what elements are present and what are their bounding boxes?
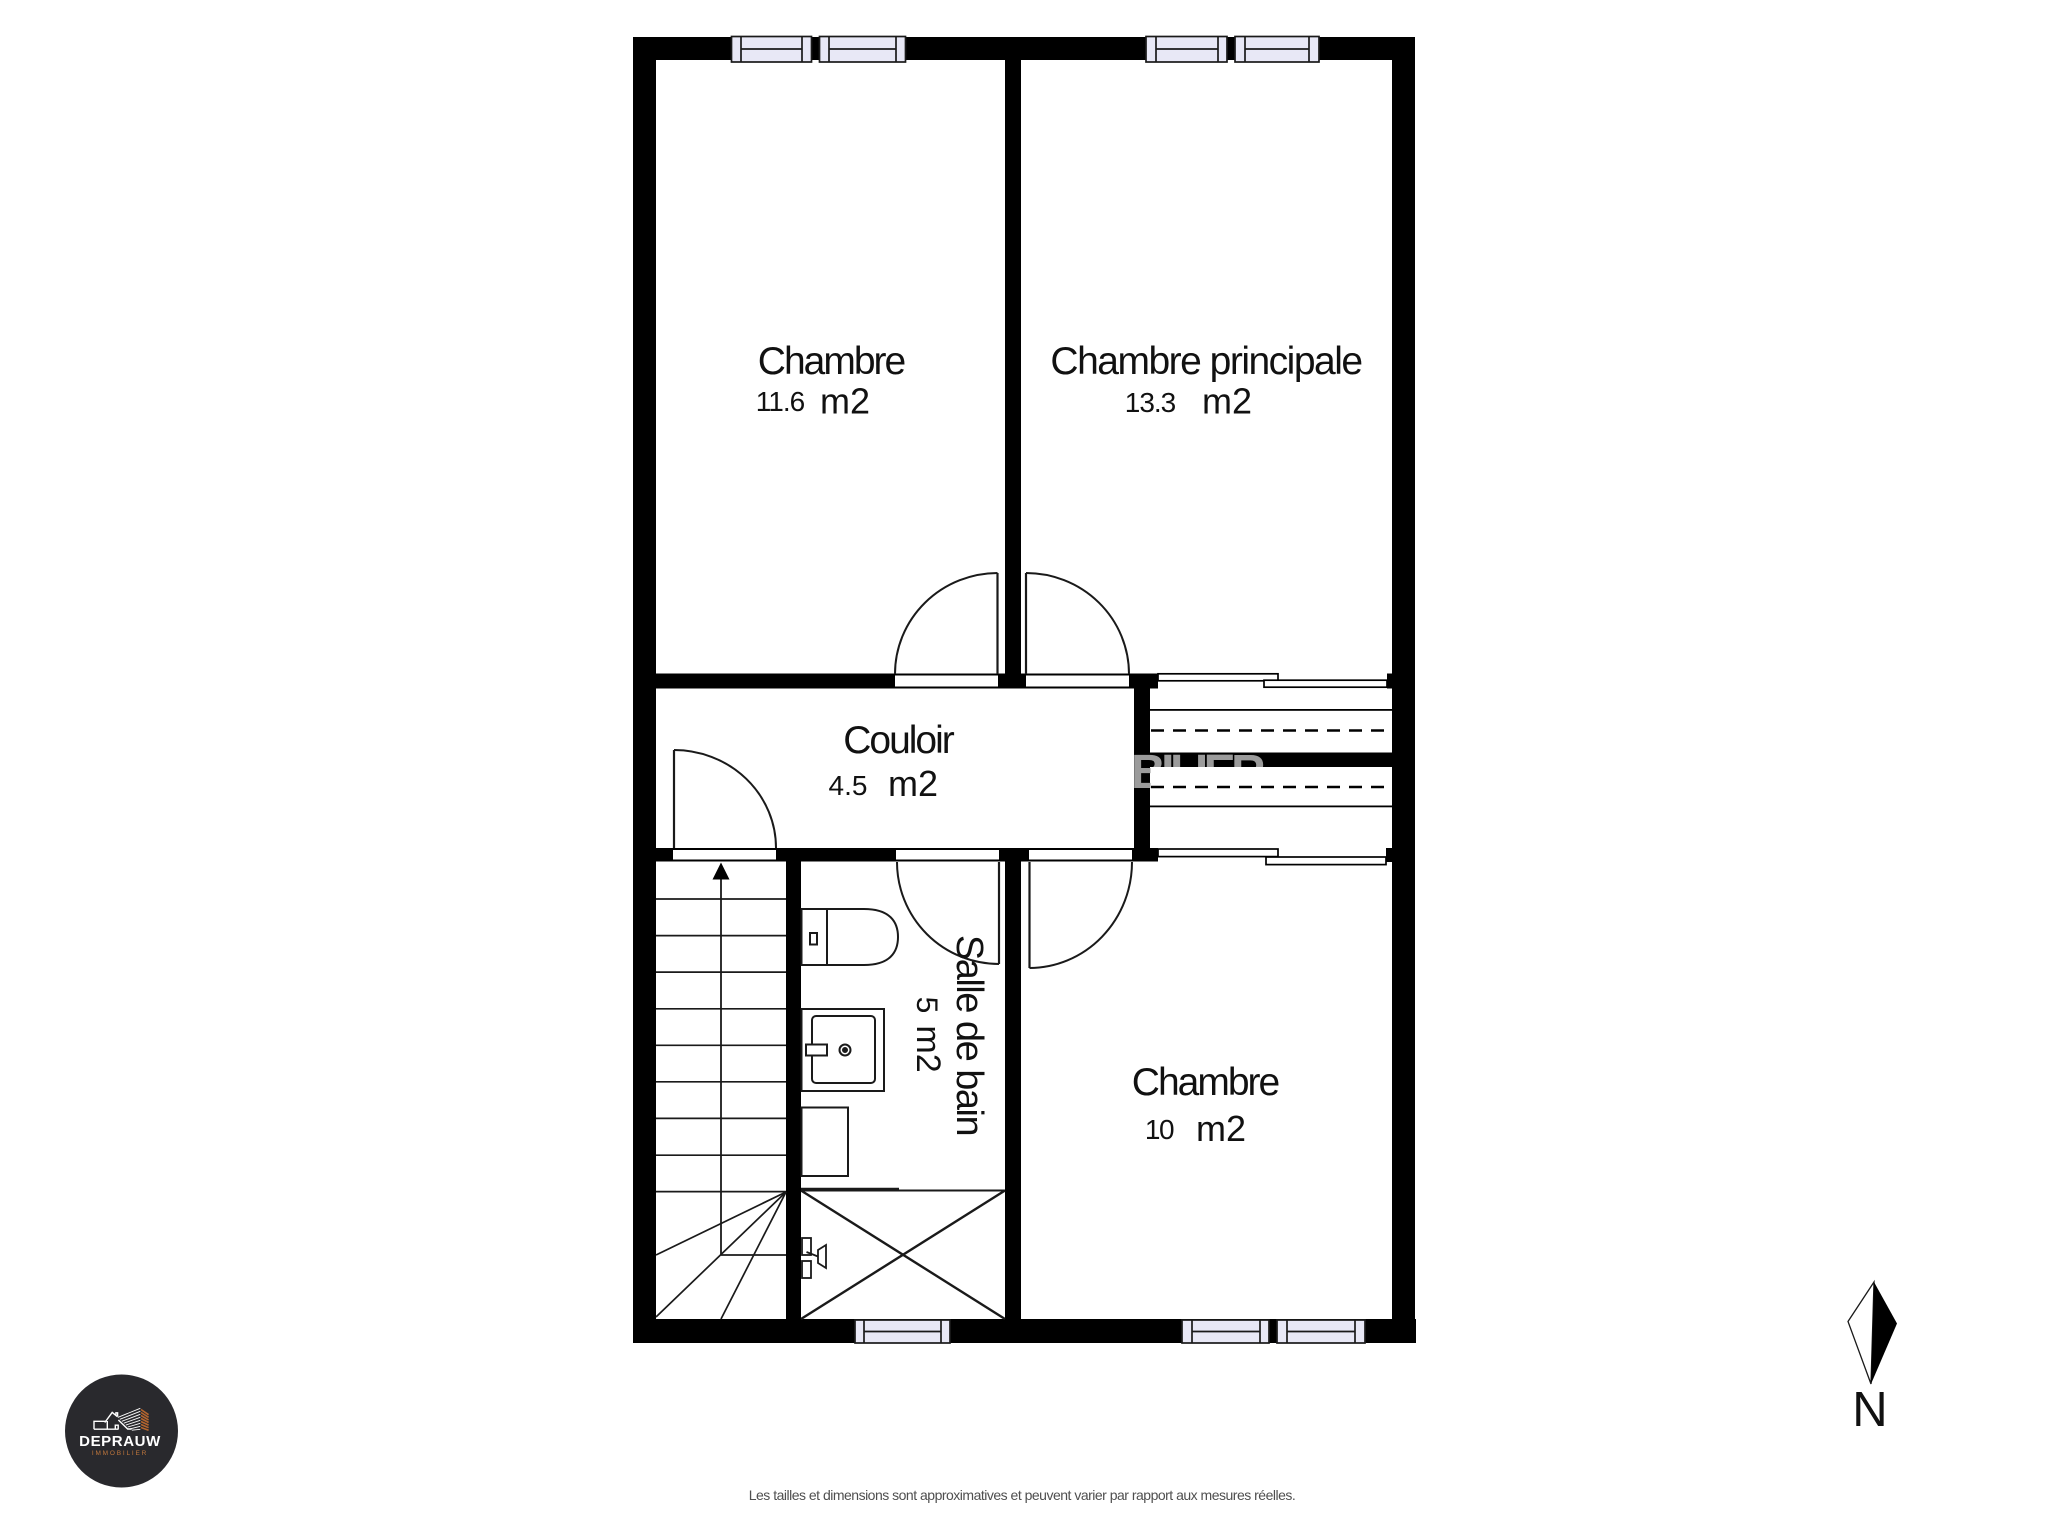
svg-text:Chambre principale: Chambre principale (1050, 340, 1361, 383)
svg-text:DEPRAUW: DEPRAUW (79, 1433, 161, 1450)
svg-text:Couloir: Couloir (843, 719, 955, 762)
svg-text:13.3: 13.3 (1125, 387, 1176, 418)
svg-text:Chambre: Chambre (758, 340, 905, 383)
svg-text:10: 10 (1145, 1114, 1174, 1145)
svg-text:11.6: 11.6 (756, 386, 805, 417)
svg-text:m2: m2 (1202, 381, 1252, 422)
svg-text:Chambre: Chambre (1132, 1061, 1279, 1104)
svg-text:m2: m2 (820, 381, 870, 422)
svg-text:5: 5 (910, 997, 943, 1014)
svg-text:Salle de bain: Salle de bain (948, 935, 990, 1135)
svg-text:m2: m2 (888, 763, 938, 804)
svg-text:Les tailles et dimensions sont: Les tailles et dimensions sont approxima… (749, 1487, 1296, 1503)
svg-text:IMMOBILIER: IMMOBILIER (92, 1450, 148, 1457)
svg-text:m2: m2 (909, 1025, 947, 1072)
svg-text:m2: m2 (1196, 1108, 1246, 1149)
svg-text:N: N (1852, 1383, 1887, 1437)
svg-text:4.5: 4.5 (829, 770, 868, 801)
